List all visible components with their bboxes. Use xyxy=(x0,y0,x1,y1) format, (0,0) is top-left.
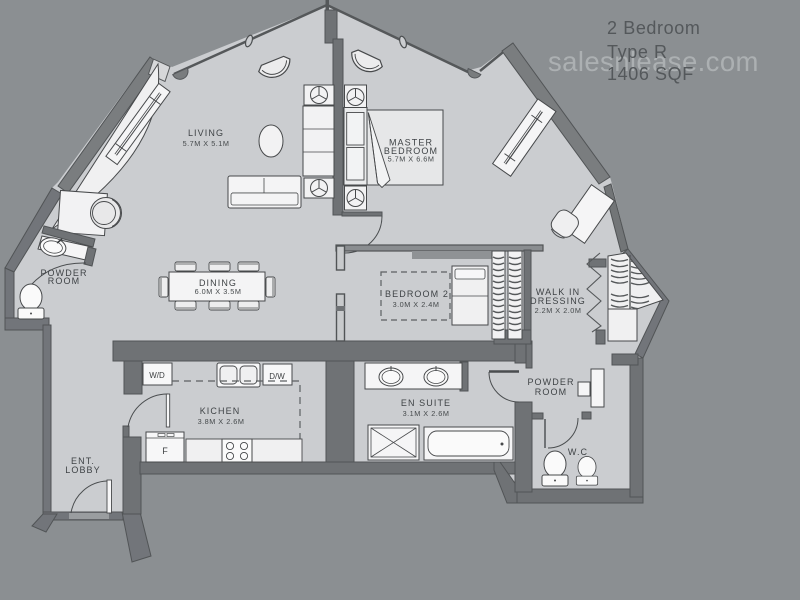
svg-text:3.8M X 2.6M: 3.8M X 2.6M xyxy=(198,417,245,426)
svg-text:3.1M X 2.6M: 3.1M X 2.6M xyxy=(403,409,450,418)
svg-text:D/W: D/W xyxy=(269,372,285,381)
svg-text:3.0M X 2.4M: 3.0M X 2.4M xyxy=(393,300,440,309)
svg-text:W.C: W.C xyxy=(568,447,588,457)
svg-text:BEDROOM 2: BEDROOM 2 xyxy=(385,289,449,299)
svg-text:1406 SQF: 1406 SQF xyxy=(607,64,694,84)
svg-text:F: F xyxy=(162,446,168,456)
svg-text:5.7M X 5.1M: 5.7M X 5.1M xyxy=(183,139,230,148)
svg-text:DRESSING: DRESSING xyxy=(530,296,586,306)
svg-text:W/D: W/D xyxy=(149,371,165,380)
svg-text:5.7M X 6.6M: 5.7M X 6.6M xyxy=(388,155,435,164)
svg-text:ROOM: ROOM xyxy=(48,276,80,286)
svg-text:6.0M X 3.5M: 6.0M X 3.5M xyxy=(195,287,242,296)
svg-text:2.2M X 2.0M: 2.2M X 2.0M xyxy=(535,306,582,315)
svg-text:Type R: Type R xyxy=(607,42,668,62)
svg-text:LOBBY: LOBBY xyxy=(65,465,101,475)
svg-text:POWDER: POWDER xyxy=(527,377,574,387)
svg-text:2 Bedroom: 2 Bedroom xyxy=(607,18,700,38)
svg-text:LIVING: LIVING xyxy=(188,128,224,138)
svg-text:KICHEN: KICHEN xyxy=(200,406,241,416)
svg-text:ROOM: ROOM xyxy=(535,387,567,397)
svg-text:EN SUITE: EN SUITE xyxy=(401,398,451,408)
